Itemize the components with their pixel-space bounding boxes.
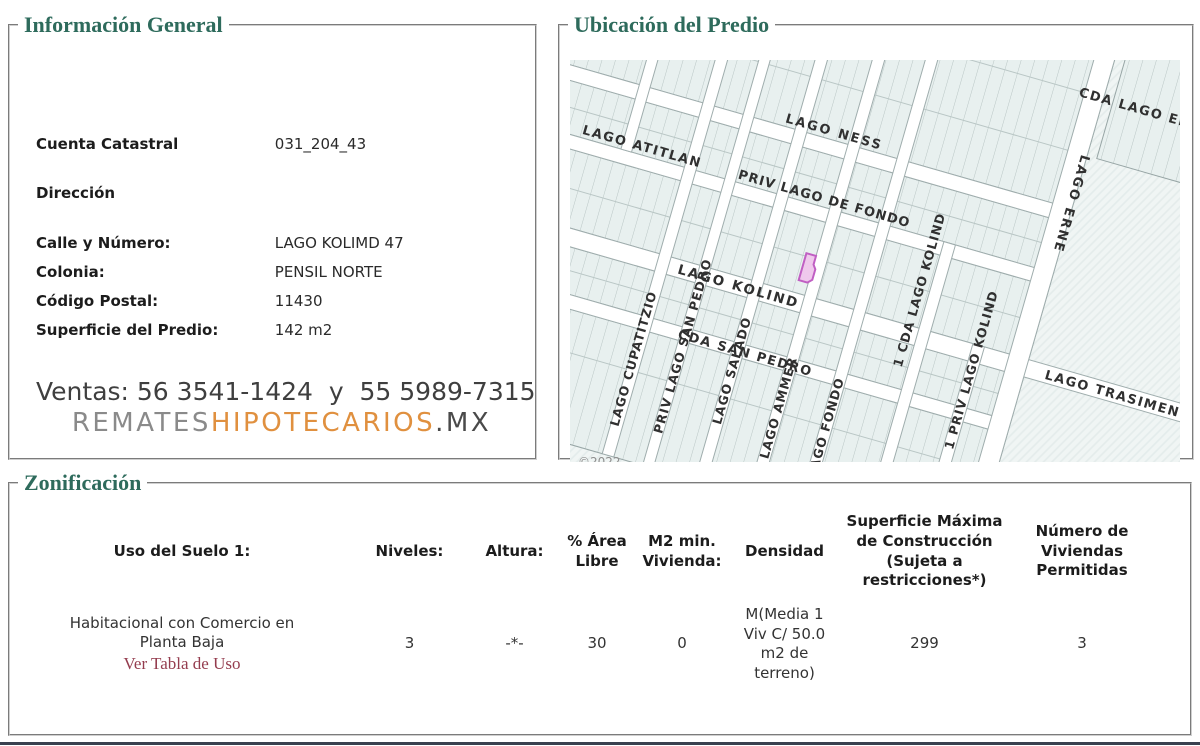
col-header-uso-del-suelo: Uso del Suelo 1: (12, 512, 352, 591)
field-superficie: Superficie del Predio: 142 m2 (36, 316, 527, 345)
col-header-densidad: Densidad (732, 512, 837, 591)
field-value: 142 m2 (275, 321, 333, 339)
field-label: Superficie del Predio: (36, 316, 270, 345)
col-header-altura: Altura: (467, 512, 562, 591)
field-codigo-postal: Código Postal: 11430 (36, 287, 527, 316)
col-header-numero-viviendas: Número de Viviendas Permitidas (1012, 512, 1152, 591)
field-direccion: Dirección (36, 179, 527, 208)
field-value: PENSIL NORTE (275, 263, 383, 281)
col-header-superficie-maxima: Superficie Máxima de Construcción (Sujet… (837, 512, 1012, 591)
ver-tabla-de-uso-link[interactable]: Ver Tabla de Uso (124, 653, 241, 675)
field-label: Calle y Número: (36, 229, 270, 258)
cell-area-libre: 30 (562, 591, 632, 683)
cell-altura: -*- (467, 591, 562, 683)
field-label: Dirección (36, 179, 270, 208)
field-colonia: Colonia: PENSIL NORTE (36, 258, 527, 287)
sales-phone-line: Ventas: 56 3541-1424 y 55 5989-7315 (36, 377, 527, 406)
map-attribution-fragment: ©2022 (578, 455, 621, 462)
col-header-m2-min-vivienda: M2 min. Vivienda: (632, 512, 732, 591)
zonificacion-title: Zonificación (18, 470, 147, 496)
field-value: 11430 (275, 292, 323, 310)
field-calle-numero: Calle y Número: LAGO KOLIMD 47 (36, 229, 527, 258)
info-general-title: Información General (18, 12, 229, 38)
cell-numero-viviendas: 3 (1012, 591, 1152, 683)
field-value: LAGO KOLIMD 47 (275, 234, 404, 252)
cell-uso-del-suelo: Habitacional con Comercio en Planta Baja… (12, 591, 352, 683)
field-label: Código Postal: (36, 287, 270, 316)
info-general-section: Información General Cuenta Catastral 031… (8, 12, 537, 460)
field-label: Colonia: (36, 258, 270, 287)
cell-densidad: M(Media 1 Viv C/ 50.0 m2 de terreno) (732, 591, 837, 683)
brand-part-hipotecarios: HIPOTECARIOS (211, 408, 435, 438)
brand-wordmark: REMATESHIPOTECARIOS.MX (36, 408, 527, 438)
table-row: Habitacional con Comercio en Planta Baja… (12, 591, 1182, 683)
col-header-niveles: Niveles: (352, 512, 467, 591)
brand-part-remates: REMATES (72, 408, 211, 438)
cadastral-map-image: LAGO NESS CDA LAGO ER LAGO ATITLAN PRIV … (570, 60, 1180, 462)
zonificacion-table: Uso del Suelo 1: Niveles: Altura: % Área… (12, 512, 1182, 683)
cell-m2-min-vivienda: 0 (632, 591, 732, 683)
page-bottom-divider (0, 742, 1200, 745)
field-label: Cuenta Catastral (36, 130, 270, 159)
zonificacion-section: Zonificación Uso del Suelo 1: Niveles: A… (8, 470, 1192, 736)
map-section: Ubicación del Predio (558, 12, 1194, 460)
property-listing-page: Información General Cuenta Catastral 031… (0, 0, 1200, 746)
table-header-row: Uso del Suelo 1: Niveles: Altura: % Área… (12, 512, 1182, 591)
col-header-area-libre: % Área Libre (562, 512, 632, 591)
cell-superficie-maxima: 299 (837, 591, 1012, 683)
uso-del-suelo-value: Habitacional con Comercio en Planta Baja (66, 614, 298, 653)
cell-niveles: 3 (352, 591, 467, 683)
brand-part-mx: .MX (435, 408, 491, 438)
map-section-title: Ubicación del Predio (568, 12, 775, 38)
info-general-content: Cuenta Catastral 031_204_43 Dirección Ca… (36, 130, 527, 438)
field-cuenta-catastral: Cuenta Catastral 031_204_43 (36, 130, 527, 159)
field-value: 031_204_43 (275, 135, 366, 153)
